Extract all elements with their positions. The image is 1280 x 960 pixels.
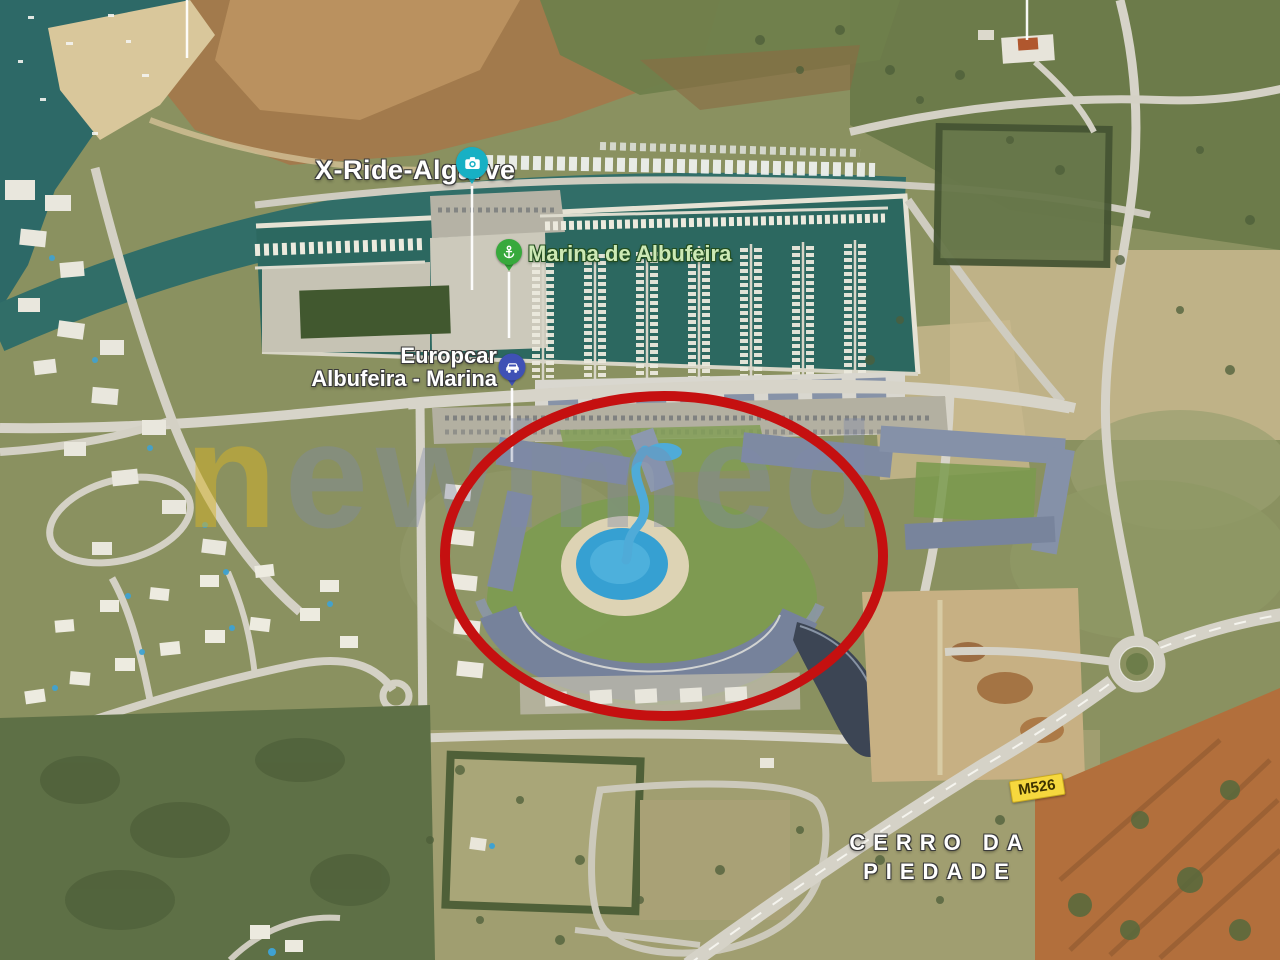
camera-icon bbox=[464, 155, 481, 172]
watermark-rest: ewimed bbox=[285, 391, 883, 559]
marina-label[interactable]: Marina de Albufeira bbox=[528, 241, 731, 267]
car-icon bbox=[504, 359, 520, 375]
dirt-lot bbox=[862, 588, 1085, 782]
area-label-line1: CERRO DA bbox=[849, 828, 1030, 857]
anchor-icon bbox=[502, 245, 516, 259]
scrub-southwest bbox=[0, 705, 435, 960]
area-label-line2: PIEDADE bbox=[849, 857, 1030, 886]
europcar-label-line1[interactable]: Europcar bbox=[311, 344, 497, 367]
europcar-label-line2[interactable]: Albufeira - Marina bbox=[311, 367, 497, 390]
europcar-label[interactable]: Europcar Albufeira - Marina bbox=[311, 344, 497, 390]
satellite-map[interactable]: newimed X-Ride-Algarve Marina de Albufei… bbox=[0, 0, 1280, 960]
watermark: newimed bbox=[185, 398, 1095, 558]
area-label-cerro-da-piedade: CERRO DA PIEDADE bbox=[849, 828, 1030, 886]
watermark-first-letter: n bbox=[185, 391, 285, 559]
